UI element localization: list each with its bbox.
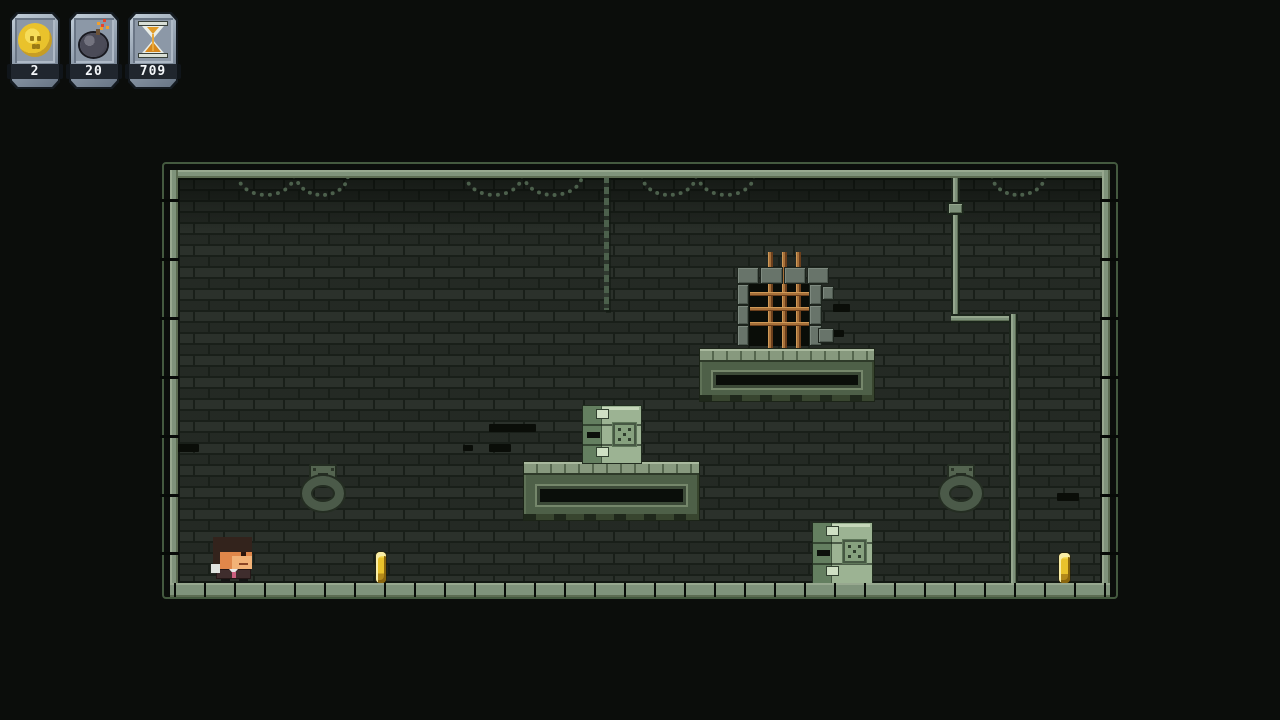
floor-tick: [384, 583, 386, 597]
window-stone: [737, 325, 749, 346]
floor-tick: [324, 583, 326, 597]
crate-panel-dots: [618, 428, 621, 431]
pipe-vertical-lower: [1009, 314, 1018, 583]
floor-tick: [354, 583, 356, 597]
floor-tick: [984, 583, 986, 597]
frame-band-top: [170, 170, 1110, 178]
player-cuff: [211, 564, 220, 573]
pipe-elbow: [951, 314, 1018, 323]
hourglass-sand-stream: [152, 34, 154, 51]
crate-latch: [827, 567, 838, 575]
bomb-icon: [80, 33, 107, 57]
wall-tick-right: [1100, 552, 1119, 555]
metal-crate: [813, 523, 872, 583]
dark-brick: [463, 445, 473, 451]
window-stone: [784, 267, 806, 284]
brick-wall: [178, 178, 1102, 583]
floor-tick: [714, 583, 716, 597]
floor-tick: [474, 583, 476, 597]
window-stone: [818, 328, 834, 343]
window-bar-horizontal: [750, 322, 810, 326]
floor-tick: [264, 583, 266, 597]
coin-face-marks: [30, 36, 34, 41]
crate-latch: [827, 527, 838, 535]
floor-tick: [624, 583, 626, 597]
floor-tick: [894, 583, 896, 597]
player-hair: [213, 537, 252, 552]
player-character: [213, 537, 253, 583]
floor-tick: [774, 583, 776, 597]
ring-bolt: [951, 468, 954, 471]
window-stone: [822, 286, 834, 300]
crate-slot: [817, 550, 830, 556]
ring-bolt: [313, 468, 316, 471]
wall-tick-right: [1100, 435, 1119, 438]
coin-pickup: [1059, 553, 1070, 583]
wall-tick-right: [1100, 494, 1119, 497]
floor-tick: [534, 583, 536, 597]
bomb-fuse: [96, 29, 100, 35]
floor-tick: [594, 583, 596, 597]
window-stone: [737, 284, 749, 305]
bomb-spark: [101, 24, 104, 27]
window-stone: [737, 267, 759, 284]
window-stone: [760, 267, 783, 284]
pipe-vertical-upper: [951, 178, 960, 318]
level-room[interactable]: [162, 162, 1118, 599]
window-stone: [809, 305, 822, 325]
wall-tick-left: [160, 435, 179, 438]
coin-icon: [18, 23, 52, 57]
crate-latch: [597, 448, 608, 456]
ring-bolt: [969, 468, 972, 471]
floor-tick: [174, 583, 176, 597]
coin-count: 2: [7, 64, 63, 79]
bomb-count: 20: [66, 64, 122, 79]
wall-tick-right: [1100, 199, 1119, 202]
wall-tick-left: [160, 376, 179, 379]
metal-crate: [583, 406, 641, 463]
platform-vent-core: [540, 489, 683, 502]
floor-tick: [504, 583, 506, 597]
hanging-chain: [604, 176, 609, 310]
hourglass-bottom-bar: [138, 53, 168, 58]
dark-brick: [177, 444, 199, 452]
floor-tick: [654, 583, 656, 597]
game-screen: 2 20 709: [0, 0, 1280, 720]
ring-loop: [302, 476, 344, 511]
floor-tick: [414, 583, 416, 597]
player-tie: [232, 572, 236, 578]
platform-underside: [700, 395, 874, 401]
pipe-coupling: [947, 202, 964, 215]
hud-counter-timer: 709: [128, 12, 178, 89]
wall-tick-right: [1100, 317, 1119, 320]
platform-tiles: [700, 349, 874, 362]
floor-tick: [684, 583, 686, 597]
platform-tiles: [524, 462, 699, 475]
floor-tick: [444, 583, 446, 597]
dark-brick: [1057, 493, 1079, 501]
window-bar-horizontal: [750, 307, 810, 311]
crate-latch: [597, 410, 608, 418]
wall-tick-right: [1100, 258, 1119, 261]
platform-vent-core: [716, 375, 858, 385]
floor-tick: [204, 583, 206, 597]
ring-loop: [940, 476, 982, 511]
platform-underside: [524, 514, 699, 520]
window-bar-horizontal: [750, 292, 810, 296]
crate-panel-dots: [848, 545, 851, 548]
crate-panel: [613, 423, 636, 446]
floor-tick: [1014, 583, 1016, 597]
window-stone: [807, 267, 829, 284]
platform-vent: [535, 484, 688, 507]
wall-tick-left: [160, 199, 179, 202]
coin-pickup: [376, 552, 386, 583]
hud-counter-bombs: 20: [69, 12, 119, 89]
hourglass-top-sand: [147, 27, 159, 34]
crate-panel: [843, 540, 866, 563]
floor-tick: [744, 583, 746, 597]
hourglass-icon: [138, 21, 168, 58]
player-mouth: [239, 563, 248, 565]
floor-tick: [864, 583, 866, 597]
dark-brick: [489, 424, 536, 432]
floor-tick: [924, 583, 926, 597]
floor-tick: [954, 583, 956, 597]
floor-tick: [294, 583, 296, 597]
floor-tick: [1044, 583, 1046, 597]
dark-brick: [489, 444, 511, 452]
wall-tick-left: [160, 494, 179, 497]
frame-band-floor: [170, 583, 1110, 597]
dark-brick: [833, 304, 850, 312]
ring-bolt: [331, 468, 334, 471]
wall-tick-right: [1100, 376, 1119, 379]
floor-tick: [804, 583, 806, 597]
time-count: 709: [125, 64, 181, 79]
platform: [700, 349, 874, 401]
floor-tick: [834, 583, 836, 597]
window-stone: [737, 305, 749, 325]
platform: [524, 462, 699, 520]
wall-tick-left: [160, 552, 179, 555]
wall-tick-left: [160, 317, 179, 320]
crate-slot: [587, 432, 600, 438]
wall-tick-left: [160, 258, 179, 261]
floor-tick: [564, 583, 566, 597]
floor-tick: [1074, 583, 1076, 597]
wall-ring: [301, 462, 345, 512]
floor-tick: [1104, 583, 1106, 597]
floor-tick: [234, 583, 236, 597]
window-stone: [809, 284, 822, 305]
wall-ring: [939, 462, 983, 512]
platform-vent: [711, 370, 863, 390]
hud-counter-coins: 2: [10, 12, 60, 89]
barred-window: [736, 252, 832, 350]
